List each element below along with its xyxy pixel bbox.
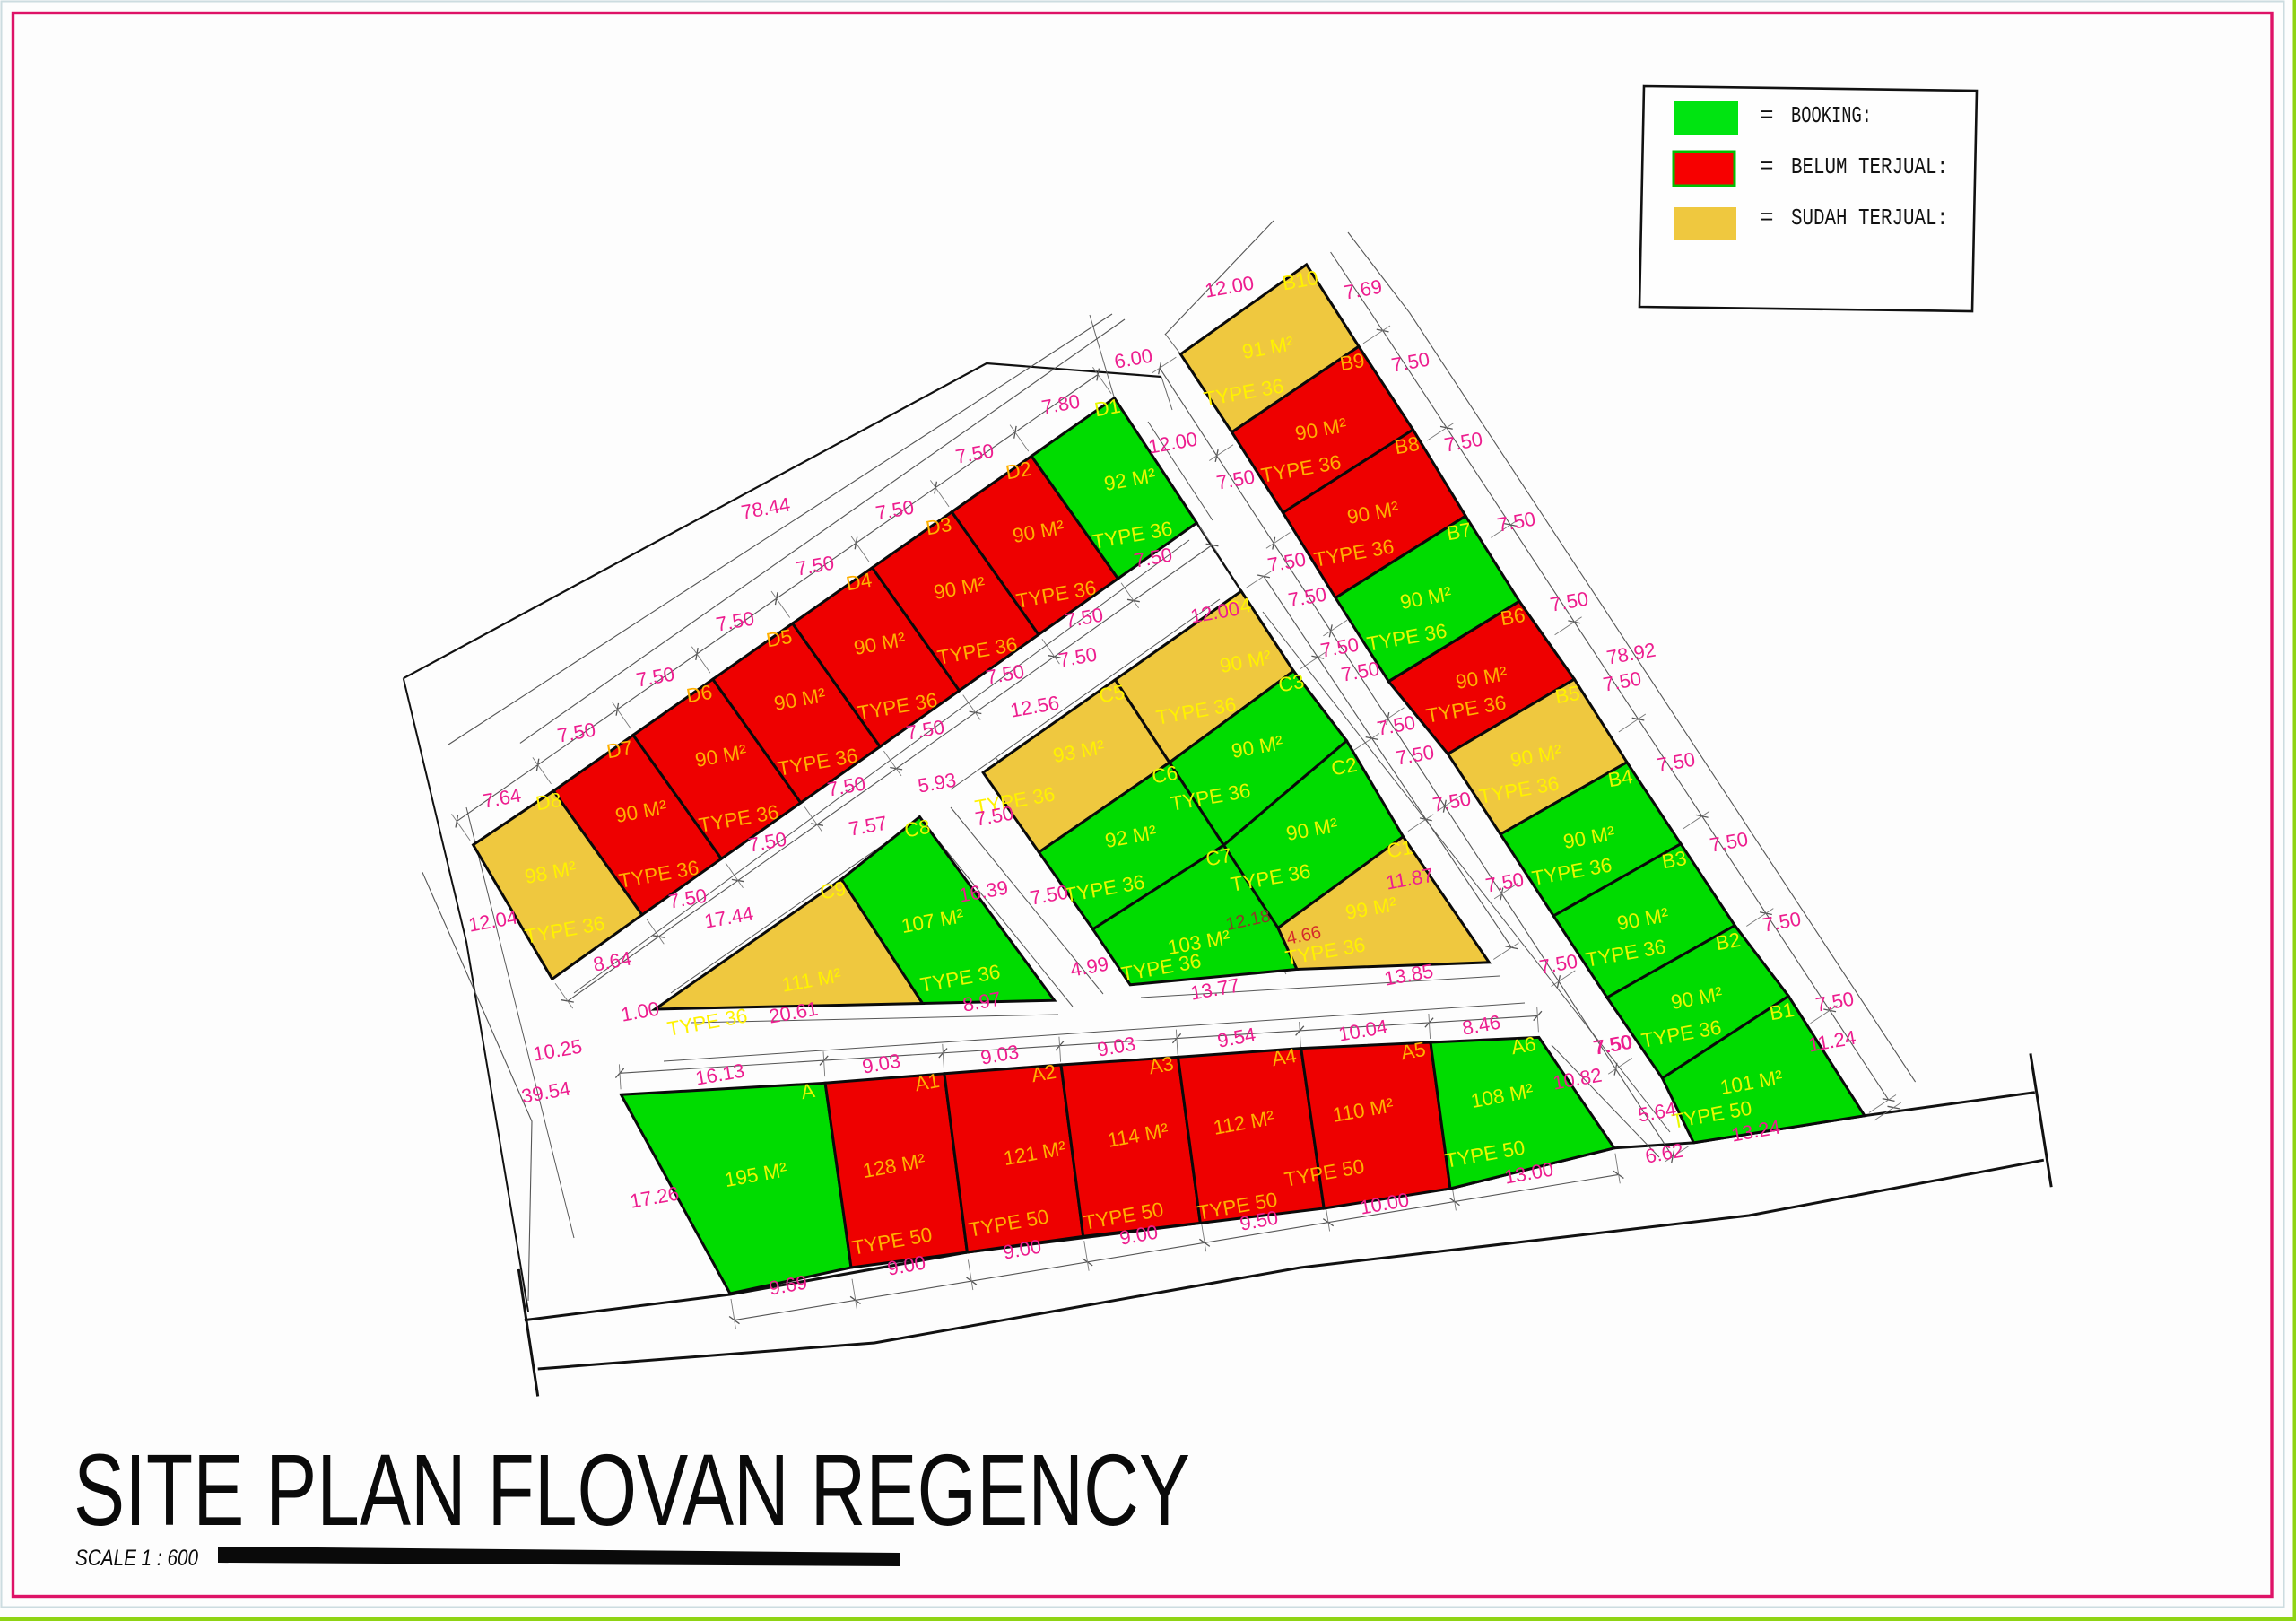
svg-text:D3: D3 [924,513,953,540]
svg-text:A5: A5 [1399,1038,1427,1064]
svg-text:A6: A6 [1509,1033,1537,1059]
svg-text:C8: C8 [902,815,932,842]
svg-text:D8: D8 [534,789,563,815]
svg-text:D6: D6 [684,681,714,708]
svg-text:SUDAH TERJUAL:: SUDAH TERJUAL: [1791,205,1948,231]
svg-text:BELUM TERJUAL:: BELUM TERJUAL: [1791,153,1948,180]
svg-text:B1: B1 [1768,998,1796,1024]
svg-text:C1: C1 [1385,836,1414,863]
svg-text:D5: D5 [764,625,794,652]
svg-text:D4: D4 [844,569,874,596]
svg-text:A2: A2 [1030,1060,1057,1086]
svg-text:D2: D2 [1004,458,1033,484]
svg-text:BOOKING:: BOOKING: [1791,102,1872,129]
svg-text:B6: B6 [1499,604,1526,630]
svg-text:C7: C7 [1204,844,1233,871]
svg-text:=: = [1760,153,1774,180]
svg-text:C5: C5 [1097,681,1126,708]
svg-text:C2: C2 [1329,754,1359,780]
svg-text:D1: D1 [1092,395,1122,422]
svg-text:C6: C6 [1150,762,1179,789]
svg-text:A3: A3 [1147,1052,1175,1078]
svg-text:A4: A4 [1270,1044,1298,1070]
svg-text:A1: A1 [913,1069,941,1095]
svg-text:C3: C3 [1276,670,1306,697]
svg-text:B2: B2 [1714,928,1742,954]
svg-text:B4: B4 [1606,765,1634,791]
svg-text:C9: C9 [818,877,848,904]
svg-text:=: = [1760,205,1774,231]
svg-text:B3: B3 [1660,847,1688,873]
svg-text:B5: B5 [1553,682,1581,708]
svg-text:SCALE 1 : 600: SCALE 1 : 600 [75,1546,198,1571]
svg-text:B7: B7 [1445,519,1473,545]
svg-text:B8: B8 [1393,432,1421,458]
svg-text:SITE PLAN FLOVAN REGENCY: SITE PLAN FLOVAN REGENCY [74,1434,1190,1547]
svg-text:=: = [1760,102,1774,129]
svg-text:B9: B9 [1338,349,1366,375]
svg-text:D7: D7 [604,736,634,763]
